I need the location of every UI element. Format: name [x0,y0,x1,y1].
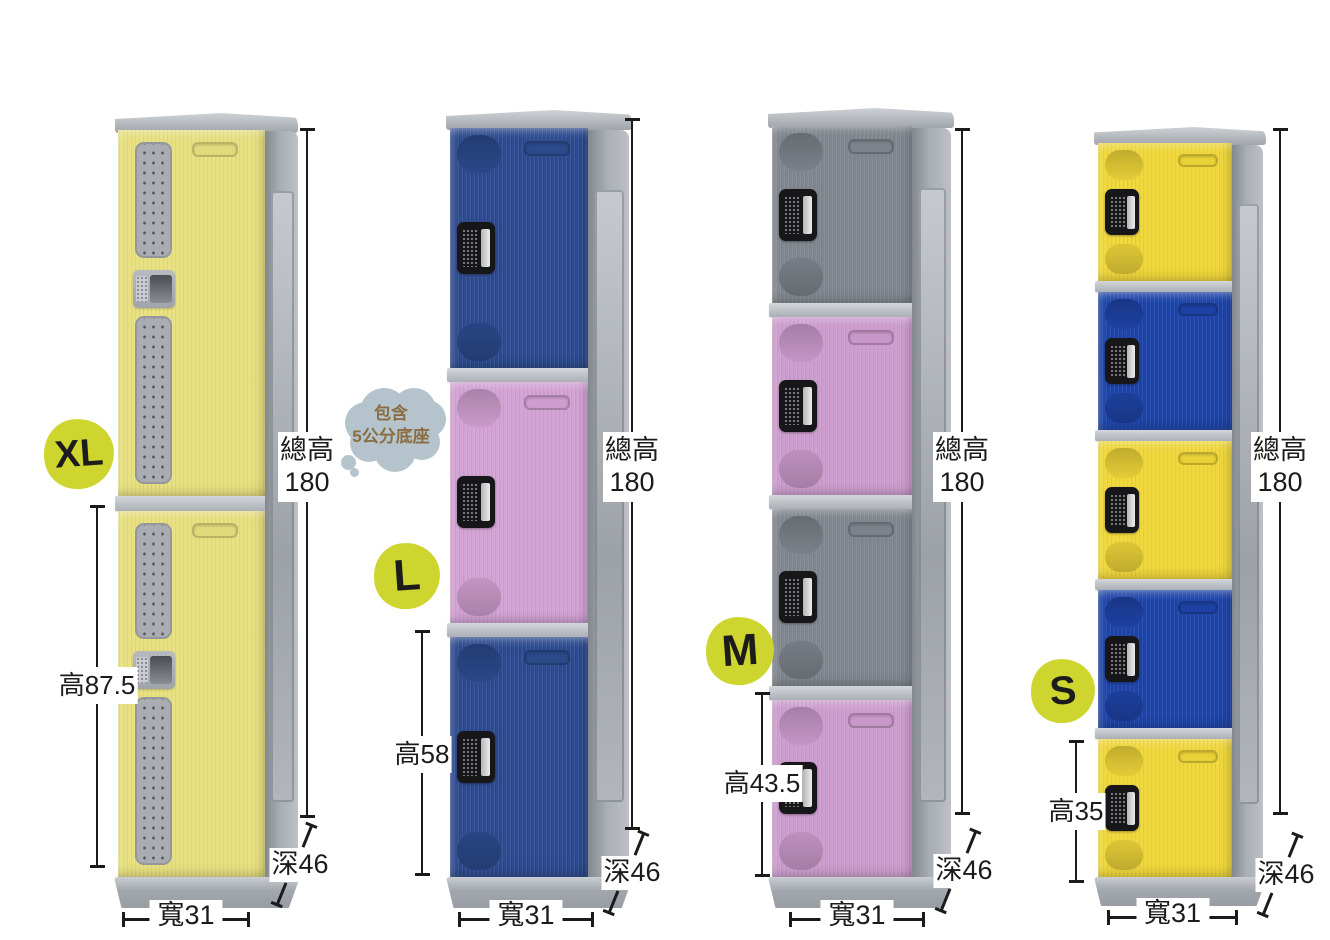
dimension-line [966,830,977,853]
lock-keypad [1110,196,1125,229]
handle-recess [150,275,172,303]
locker-side-panel [265,131,298,877]
vent-grille [135,523,172,639]
hinge-bump [779,133,823,171]
dimension-width-m: 寬31 [789,918,925,921]
locker-door [1098,441,1232,579]
lock-unit [457,731,495,783]
lock-keypad [1110,494,1125,527]
keypad [136,276,148,302]
dimension-label: 寬31 [489,900,562,932]
locker-door [450,128,588,368]
name-tag-slot [1178,452,1218,465]
hinge-bump [779,707,823,745]
note-line1: 包含 [374,404,408,423]
name-tag-slot [848,330,894,345]
lock-unit [1105,338,1139,384]
lock-unit [779,380,817,432]
dimension-door-height-s: 高35 [1068,740,1084,883]
locker-front-xl [118,130,265,877]
hinge-bump [779,516,823,554]
lock-handle [481,738,490,776]
dimension-label: 深46 [933,854,994,888]
name-tag-slot [1178,750,1218,763]
name-tag-slot [192,523,238,538]
locker-door [1098,590,1232,728]
door-handle [133,270,175,308]
locker-door [118,511,265,877]
hinge-bump [779,450,823,488]
dimension-label: 寬31 [820,900,893,932]
lock-unit [779,571,817,623]
hinge-bump [1105,150,1143,180]
name-tag-slot [1178,154,1218,167]
dimension-line [276,882,287,905]
dimension-label: 高87.5 [57,667,138,704]
locker-door [1098,143,1232,281]
hinge-bump [457,323,501,361]
hinge-bump [457,644,501,682]
door-divider [1095,728,1235,739]
lock-keypad [1110,792,1125,825]
dimension-label: 總高 180 [933,432,991,502]
hinge-bump [1105,542,1143,572]
hinge-bump [1105,597,1143,627]
dimension-label: 總高 180 [1251,432,1309,502]
name-tag-slot [192,142,238,157]
dimension-line [940,888,951,911]
lock-keypad [462,483,479,521]
lock-handle [1127,494,1135,527]
handle-recess [150,656,172,684]
dimension-label: 高35 [1047,793,1106,830]
side-recess [1238,204,1260,804]
dimension-door-height-m: 高43.5 [754,692,770,877]
locker-door [450,382,588,622]
dimension-door-height-l: 高58 [414,630,430,876]
hinge-bump [457,135,501,173]
dimension-line [608,890,619,913]
name-tag-slot [524,395,570,410]
name-tag-slot [848,139,894,154]
size-badge-s: S [1029,657,1097,725]
dimension-label: 深46 [1255,858,1316,892]
locker-front-l [450,128,588,877]
hinge-bump [1105,691,1143,721]
name-tag-slot [848,713,894,728]
lock-handle [1127,792,1135,825]
hinge-bump [1105,393,1143,423]
lock-keypad [784,578,801,616]
door-handle [133,651,175,689]
dimension-depth-xl: 深46 [268,822,332,916]
dimension-label: 高43.5 [722,765,803,802]
dimension-label: 寬31 [1136,898,1209,930]
hinge-bump [1105,746,1143,776]
hinge-bump [779,832,823,870]
dimension-total-height-m: 總高 180 [954,128,970,815]
locker-door [772,126,912,303]
lock-keypad [1110,643,1125,676]
door-divider [1095,579,1235,590]
door-divider [447,368,591,382]
lock-keypad [784,196,801,234]
note-line2: 5公分底座 [352,427,429,446]
lock-unit [1105,636,1139,682]
name-tag-slot [1178,303,1218,316]
hinge-bump [779,324,823,362]
vent-grille [135,316,172,484]
hinge-bump [1105,299,1143,329]
dimension-label: 高58 [393,736,452,773]
door-divider [1095,430,1235,441]
lock-handle [803,196,812,234]
hinge-bump [779,258,823,296]
name-tag-slot [848,522,894,537]
locker-door [1098,292,1232,430]
hinge-bump [457,832,501,870]
dimension-line [1288,834,1299,857]
vent-grille [135,697,172,865]
size-badge-m: M [704,615,777,688]
dimension-depth-m: 深46 [932,828,996,922]
lock-keypad [1110,345,1125,378]
lock-handle [1127,345,1135,378]
hinge-bump [1105,840,1143,870]
door-divider [769,686,915,700]
locker-door [1098,739,1232,877]
hinge-bump [1105,244,1143,274]
note-bubble-text: 包含 5公分底座 [342,402,440,448]
dimension-total-height-l: 總高 180 [624,118,640,830]
dimension-total-height-s: 總高 180 [1272,128,1288,815]
dimension-label: 深46 [269,848,330,882]
lock-handle [1127,196,1135,229]
lock-keypad [784,387,801,425]
door-divider [1095,281,1235,292]
dimension-label: 總高 180 [278,432,336,502]
locker-front-s [1098,143,1232,877]
lock-handle [1127,643,1135,676]
size-badge-l: L [372,541,442,611]
dimension-width-s: 寬31 [1107,916,1238,919]
size-badge-xl: XL [42,417,117,492]
locker-door [450,637,588,877]
locker-size-comparison-diagram: XL L M S 包含 5公分底座 總高 180 總高 180 [0,0,1330,940]
hinge-bump [457,578,501,616]
lock-unit [1105,487,1139,533]
lock-unit [1105,785,1139,831]
locker-top-cap [446,110,632,130]
door-divider [447,623,591,637]
door-divider [115,496,268,511]
hinge-bump [1105,448,1143,478]
lock-handle [481,229,490,267]
dimension-line [302,824,313,847]
dimension-line [634,832,645,855]
bubble-tail-dot [350,468,359,477]
dimension-depth-s: 深46 [1254,832,1318,926]
dimension-door-height-xl: 高87.5 [89,505,105,868]
dimension-width-xl: 寬31 [122,918,250,921]
locker-door [772,509,912,686]
locker-door [772,317,912,494]
dimension-label: 寬31 [149,900,222,932]
dimension-label: 總高 180 [603,432,661,502]
lock-handle [803,769,812,807]
lock-unit [1105,189,1139,235]
lock-handle [481,483,490,521]
name-tag-slot [524,141,570,156]
door-divider [769,303,915,317]
locker-side-panel [588,130,629,877]
lock-unit [457,476,495,528]
hinge-bump [779,641,823,679]
lock-unit [779,189,817,241]
hinge-bump [457,389,501,427]
door-divider [769,495,915,509]
lock-keypad [462,229,479,267]
name-tag-slot [524,650,570,665]
name-tag-slot [1178,601,1218,614]
locker-top-cap [768,108,954,128]
lock-handle [803,387,812,425]
lock-keypad [462,738,479,776]
dimension-total-height-xl: 總高 180 [299,128,315,818]
lock-handle [803,578,812,616]
dimension-width-l: 寬31 [458,918,594,921]
dimension-line [1262,892,1273,915]
locker-side-panel [912,128,951,877]
dimension-depth-l: 深46 [600,830,664,924]
locker-door [118,130,265,496]
keypad [136,657,148,683]
dimension-label: 深46 [601,856,662,890]
locker-side-panel [1232,145,1263,877]
vent-grille [135,142,172,258]
lock-unit [457,222,495,274]
